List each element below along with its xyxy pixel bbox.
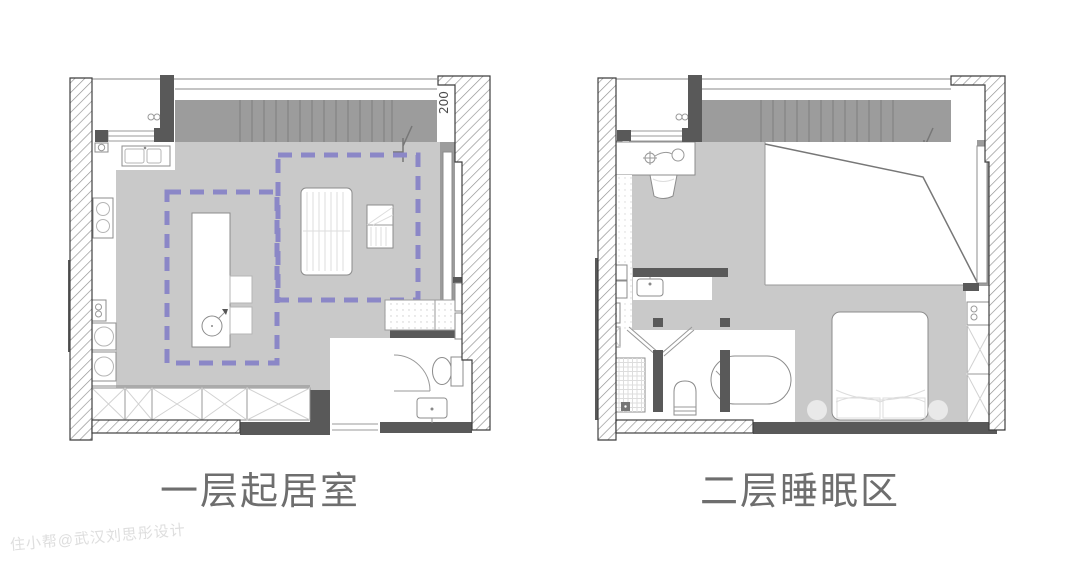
bar-chair xyxy=(230,276,252,303)
dryer xyxy=(92,352,116,381)
kitchen-sink xyxy=(122,146,170,166)
nightstand xyxy=(807,400,827,420)
top-wall-window-lines xyxy=(92,79,437,89)
bar-chair xyxy=(230,307,252,334)
caption-level-1: 一层起居室 xyxy=(140,470,380,514)
floor-plan-level-2 xyxy=(593,68,1010,448)
exterior-door-threshold xyxy=(332,424,378,430)
caption-level-2: 二层睡眠区 xyxy=(680,470,920,514)
toilet xyxy=(674,381,696,415)
floor-plan-level-1: 200 xyxy=(65,68,497,448)
bottom-storage-cabinets xyxy=(92,386,310,420)
column-symbol-icon xyxy=(95,143,108,152)
watermark: 住小帮@武汉刘思彤设计 xyxy=(9,519,186,555)
sink-symbol-cabinet xyxy=(92,300,106,321)
stool xyxy=(650,175,677,199)
nightstand xyxy=(928,400,948,420)
sofa xyxy=(301,188,352,275)
cooktop xyxy=(93,198,113,238)
washer xyxy=(92,323,116,350)
void-opening xyxy=(765,142,977,285)
floor-plan-canvas: 200 xyxy=(0,0,1080,568)
top-wall-window-lines xyxy=(616,79,951,89)
dimension-200: 200 xyxy=(437,91,451,114)
toilet xyxy=(433,357,464,386)
armchair-side-table xyxy=(367,205,393,248)
